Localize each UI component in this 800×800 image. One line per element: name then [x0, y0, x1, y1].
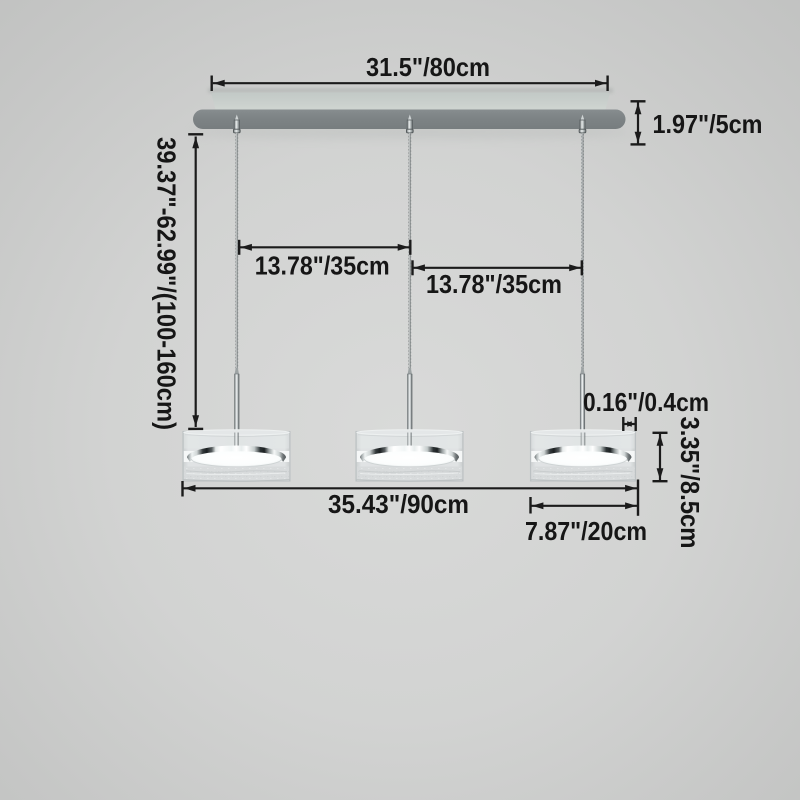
svg-text:39.37"-62.99"/(100-160cm): 39.37"-62.99"/(100-160cm) — [152, 137, 182, 430]
svg-text:3.35"/8.5cm: 3.35"/8.5cm — [675, 417, 705, 549]
svg-text:13.78"/35cm: 13.78"/35cm — [426, 269, 562, 299]
svg-text:31.5"/80cm: 31.5"/80cm — [366, 52, 490, 82]
svg-text:35.43"/90cm: 35.43"/90cm — [328, 489, 469, 519]
svg-text:0.16"/0.4cm: 0.16"/0.4cm — [583, 387, 709, 417]
svg-text:1.97"/5cm: 1.97"/5cm — [653, 109, 763, 139]
svg-text:7.87"/20cm: 7.87"/20cm — [525, 516, 647, 546]
svg-text:13.78"/35cm: 13.78"/35cm — [255, 250, 390, 280]
